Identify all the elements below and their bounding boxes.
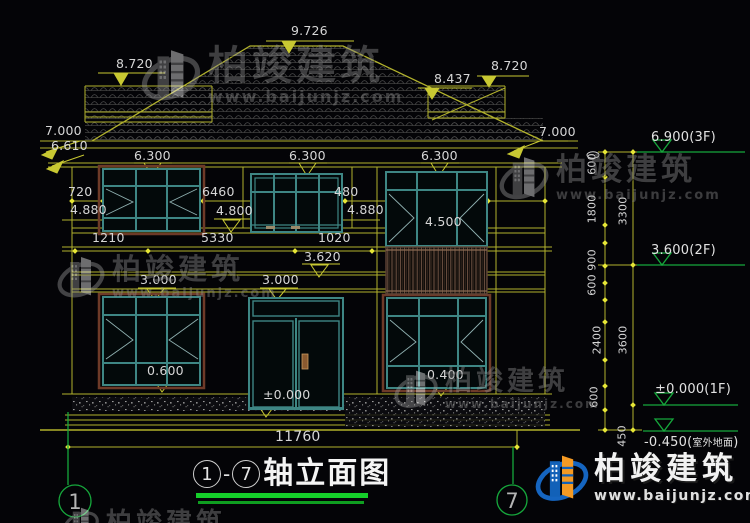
brand-logo-icon	[534, 450, 590, 506]
brand-name: 柏竣建筑	[594, 454, 750, 485]
level-3f: 6.900(3F)	[651, 131, 716, 144]
level-ground-close: )	[733, 436, 738, 449]
brand-mark: 柏竣建筑 www.baijunjz.com	[534, 450, 750, 506]
level-ground-text: 室外地面	[692, 439, 733, 449]
chain-1800: 1800	[587, 195, 598, 224]
chain-450: 450	[617, 425, 628, 447]
drawing-title: 1 - 7 轴立面图	[193, 459, 391, 489]
level-ground-number: -0.450(	[644, 436, 692, 449]
elev-0400: 0.400	[427, 369, 464, 382]
chain-3300: 3300	[618, 197, 629, 226]
elev-eave-right: 7.000	[539, 126, 576, 139]
elev-0000: ±0.000	[263, 389, 310, 402]
level-1f: ±0.000(1F)	[655, 383, 731, 396]
cad-linework	[0, 0, 750, 523]
title-underline-2	[198, 501, 364, 504]
elev-3620: 3.620	[304, 251, 341, 264]
chain-600-a: 600	[587, 153, 598, 175]
chain-600-c: 600	[589, 386, 600, 408]
chain-2400: 2400	[592, 326, 603, 355]
roof-tiles	[85, 46, 543, 141]
elev-right-roof: 8.720	[491, 60, 528, 73]
title-axis-start: 1	[193, 460, 221, 488]
title-dash: -	[223, 462, 230, 486]
elev-4880-left: 4.880	[70, 204, 107, 217]
dim-6460: 6460	[202, 186, 235, 199]
dim-1210: 1210	[92, 232, 125, 245]
elev-0600: 0.600	[147, 365, 184, 378]
dim-720: 720	[68, 186, 92, 199]
elev-3000-b: 3.000	[262, 274, 299, 287]
elev-4880-right: 4.880	[347, 204, 384, 217]
level-2f: 3.600(2F)	[651, 244, 716, 257]
dim-480: 480	[334, 186, 358, 199]
chain-900: 900	[587, 249, 598, 271]
elev-soffit-a: 6.300	[134, 150, 171, 163]
elev-left-roof: 8.720	[116, 58, 153, 71]
elev-soffit-b: 6.300	[289, 150, 326, 163]
elev-8437: 8.437	[434, 73, 471, 86]
title-underline	[196, 493, 368, 498]
title-text: 轴立面图	[263, 459, 391, 489]
balcony-railing	[386, 247, 487, 294]
brand-url: www.baijunjz.com	[594, 489, 750, 503]
elev-3000-a: 3.000	[140, 274, 177, 287]
chain-3600: 3600	[618, 326, 629, 355]
elev-soffit-c: 6.300	[421, 150, 458, 163]
elevation-drawing: 9.726 8.720 8.437 8.720 7.000 6.610 7.00…	[0, 0, 750, 523]
elev-4800: 4.800	[216, 205, 253, 218]
dim-total-width: 11760	[275, 430, 321, 444]
axis-bubble-7: 7	[505, 489, 518, 513]
chain-600-b: 600	[587, 274, 598, 296]
elev-eave-left2: 6.610	[51, 140, 88, 153]
elev-ridge: 9.726	[291, 25, 328, 38]
dim-1020: 1020	[318, 232, 351, 245]
level-ground: -0.450(室外地面)	[644, 436, 738, 449]
title-axis-end: 7	[232, 460, 260, 488]
dim-5330: 5330	[201, 232, 234, 245]
elev-4500: 4.500	[425, 216, 462, 229]
axis-bubble-1: 1	[68, 490, 81, 514]
elev-eave-left: 7.000	[45, 125, 82, 138]
